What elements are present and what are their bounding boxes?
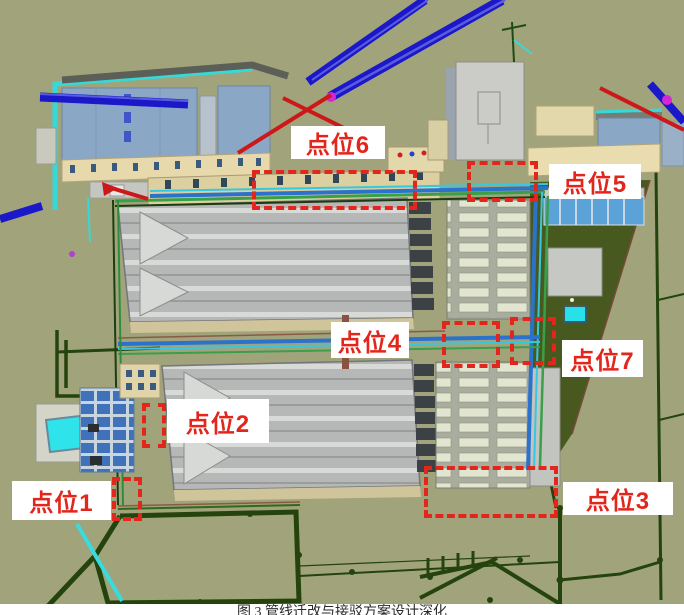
hall-a (118, 198, 530, 333)
point-5-marker-box (467, 161, 538, 202)
point-3-label: 点位3 (563, 482, 673, 515)
point-4-marker-box (442, 321, 500, 368)
point-6-marker-box (252, 170, 417, 210)
point-2-marker-box (142, 403, 166, 448)
point-6-label: 点位6 (291, 126, 385, 159)
point-3-marker-box (424, 466, 558, 518)
point-1-marker-box (112, 477, 142, 521)
point-1-label: 点位1 (12, 481, 111, 520)
figure-caption: 图 3 管线迁改与接驳方案设计深化 (0, 604, 684, 615)
figure-root: 点位1 点位2 点位3 点位4 点位5 点位6 点位7 图 3 管线迁改与接驳方… (0, 0, 684, 615)
point-2-label: 点位2 (167, 399, 269, 443)
point-7-marker-box (510, 317, 556, 365)
point-7-label: 点位7 (562, 340, 643, 377)
point-4-label: 点位4 (331, 322, 409, 358)
point-5-label: 点位5 (549, 164, 641, 199)
figure-caption-band: 图 3 管线迁改与接驳方案设计深化 (0, 604, 684, 615)
